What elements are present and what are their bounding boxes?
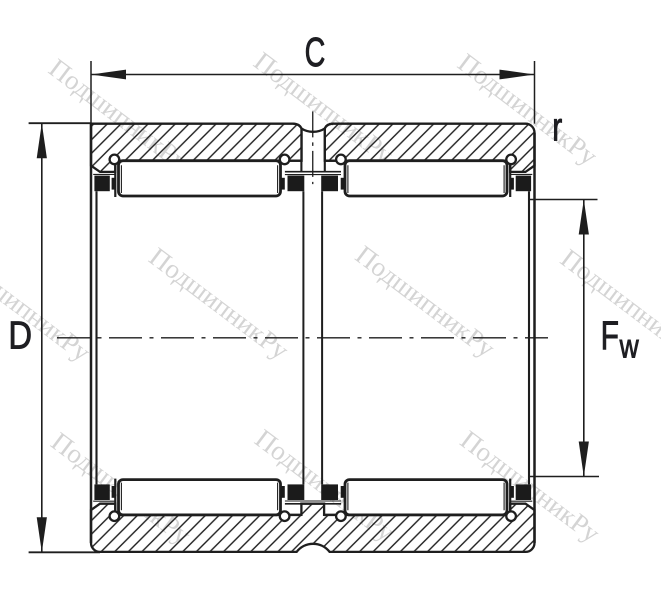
svg-text:C: C <box>305 30 326 75</box>
svg-text:w: w <box>619 329 639 365</box>
svg-text:r: r <box>552 106 562 150</box>
svg-text:D: D <box>8 313 32 357</box>
svg-text:F: F <box>601 314 619 358</box>
